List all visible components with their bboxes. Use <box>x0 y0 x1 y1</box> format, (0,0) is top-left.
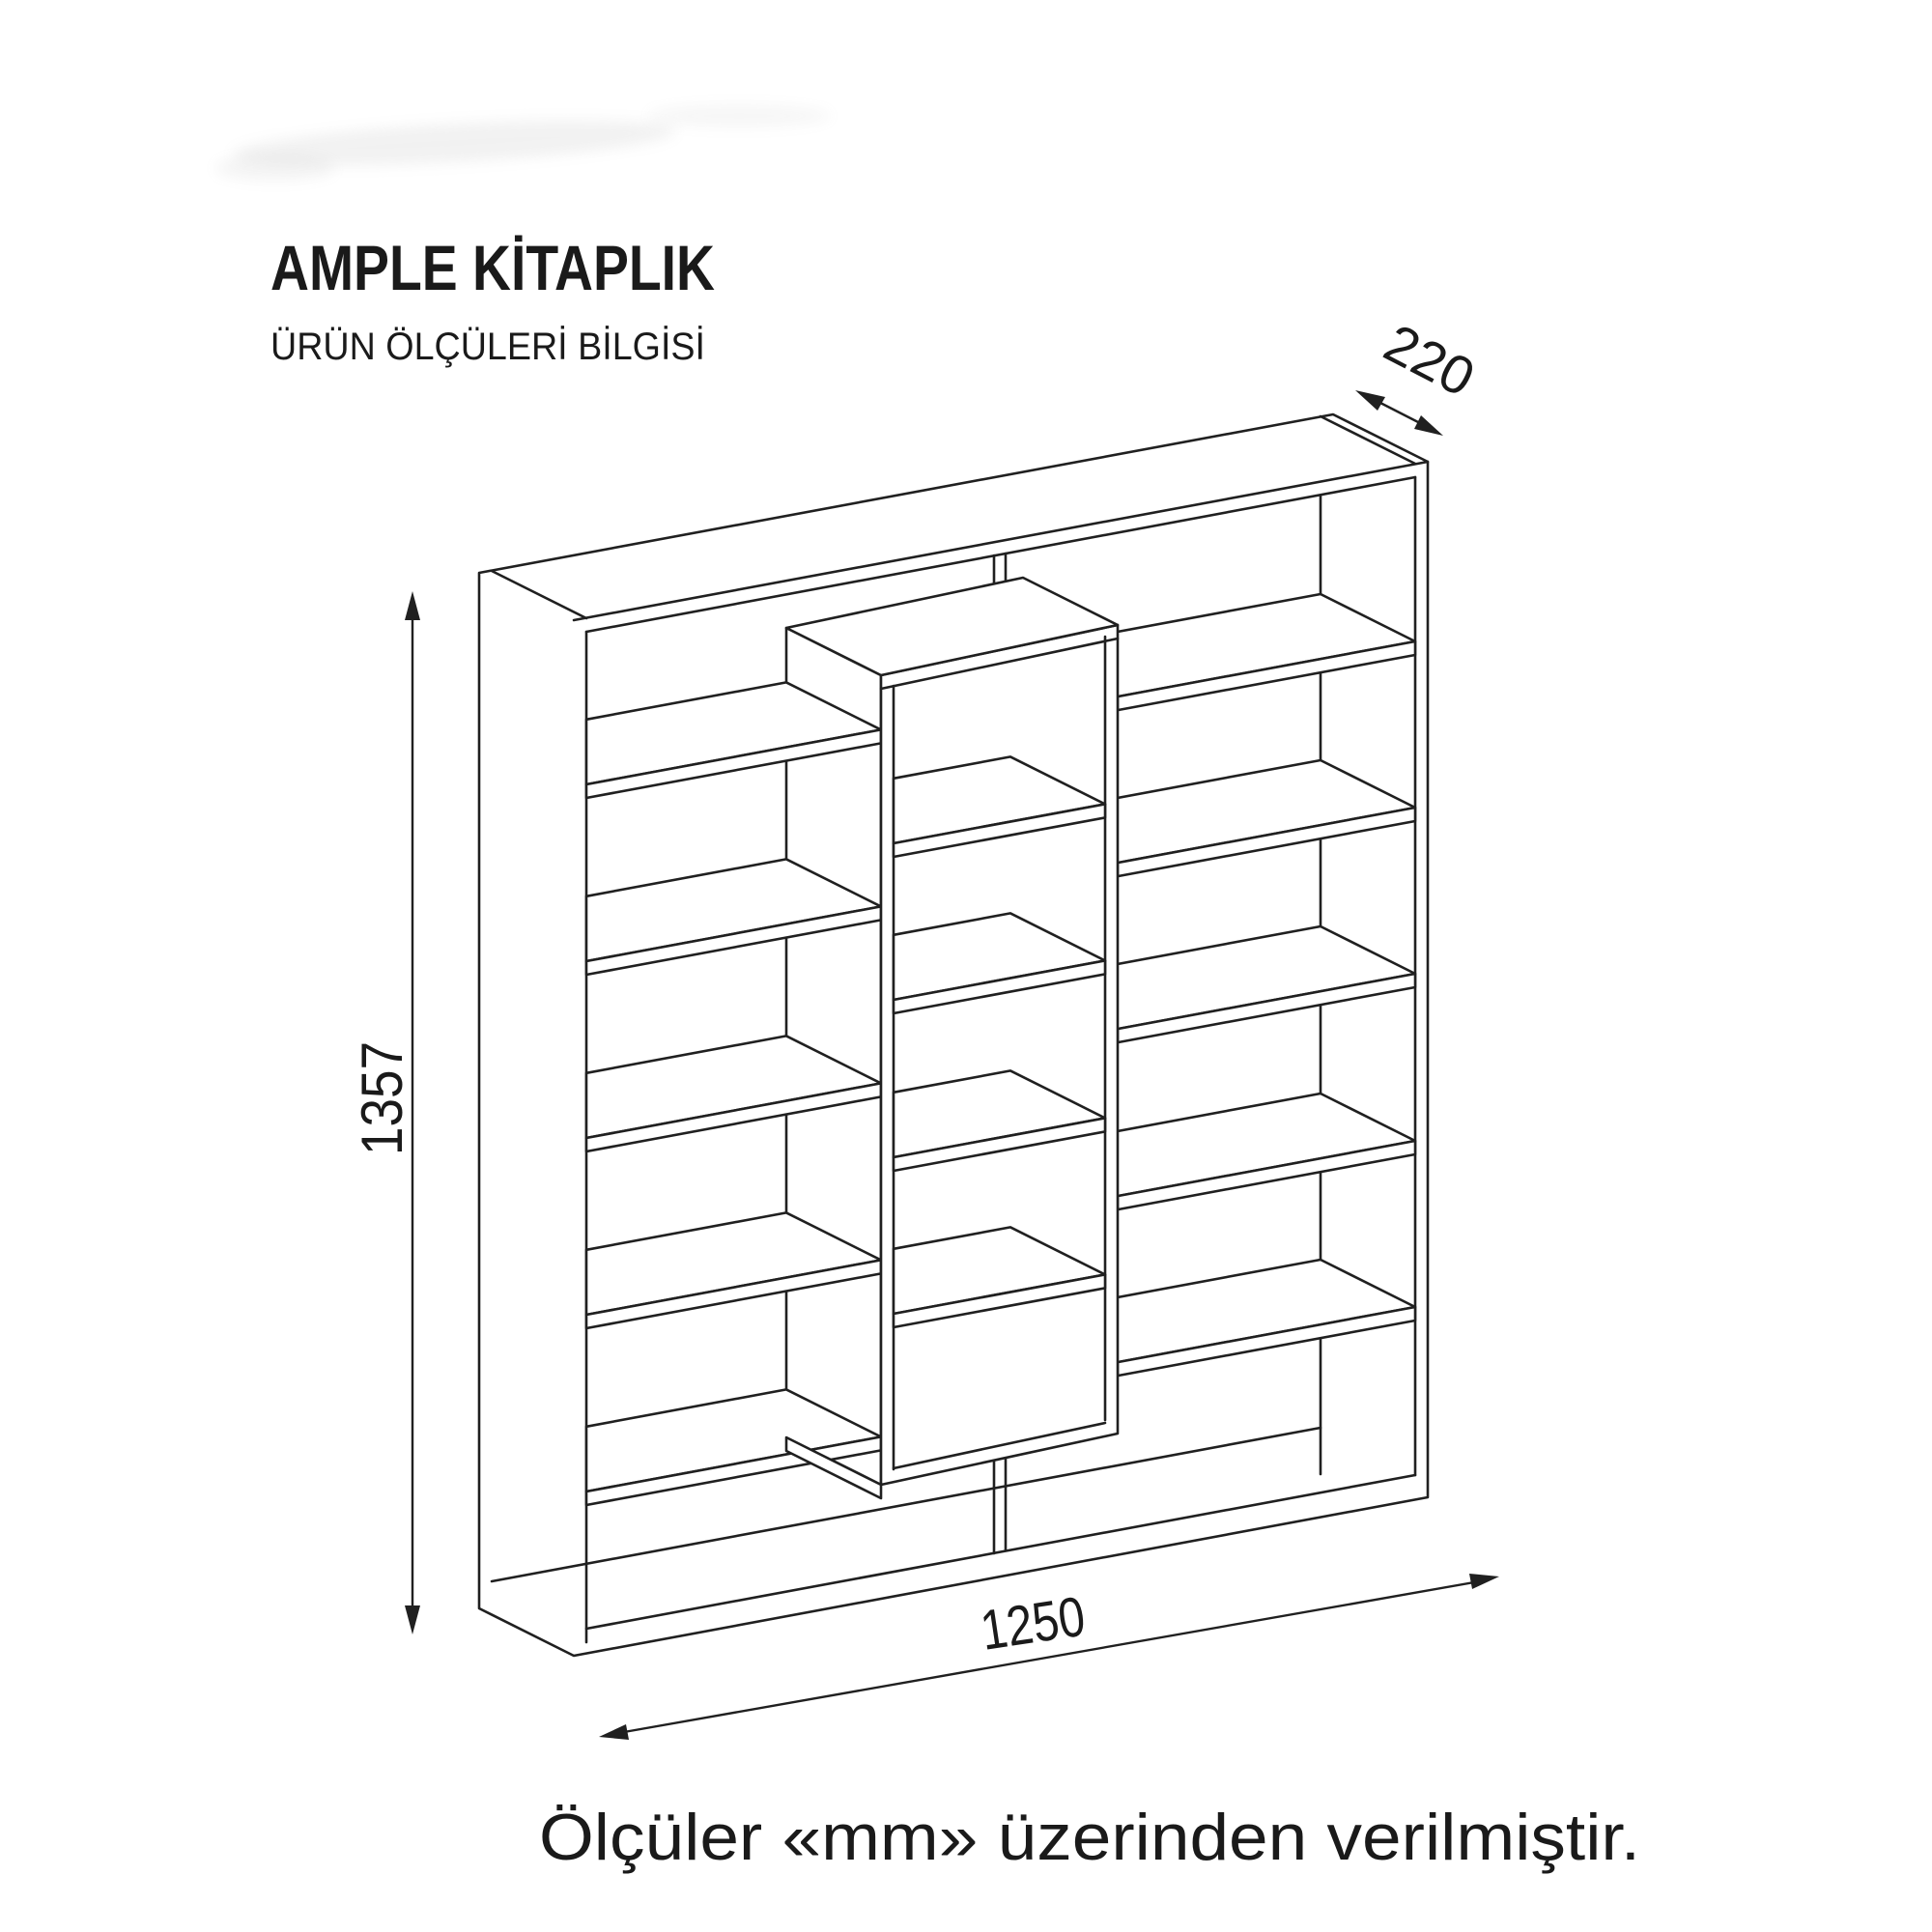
footer-note: Ölçüler «mm» üzerinden verilmiştir. <box>539 1801 1640 1874</box>
height-dimension-label: 1357 <box>350 1041 414 1155</box>
product-dimension-sheet: AMPLE KİTAPLIK ÜRÜN ÖLÇÜLERİ BİLGİSİ 220… <box>0 0 1932 1932</box>
page-title: AMPLE KİTAPLIK <box>270 232 715 303</box>
box-front-face <box>881 625 1118 1485</box>
bookshelf-drawing <box>479 414 1428 1656</box>
page-subtitle: ÜRÜN ÖLÇÜLERİ BİLGİSİ <box>270 325 705 368</box>
